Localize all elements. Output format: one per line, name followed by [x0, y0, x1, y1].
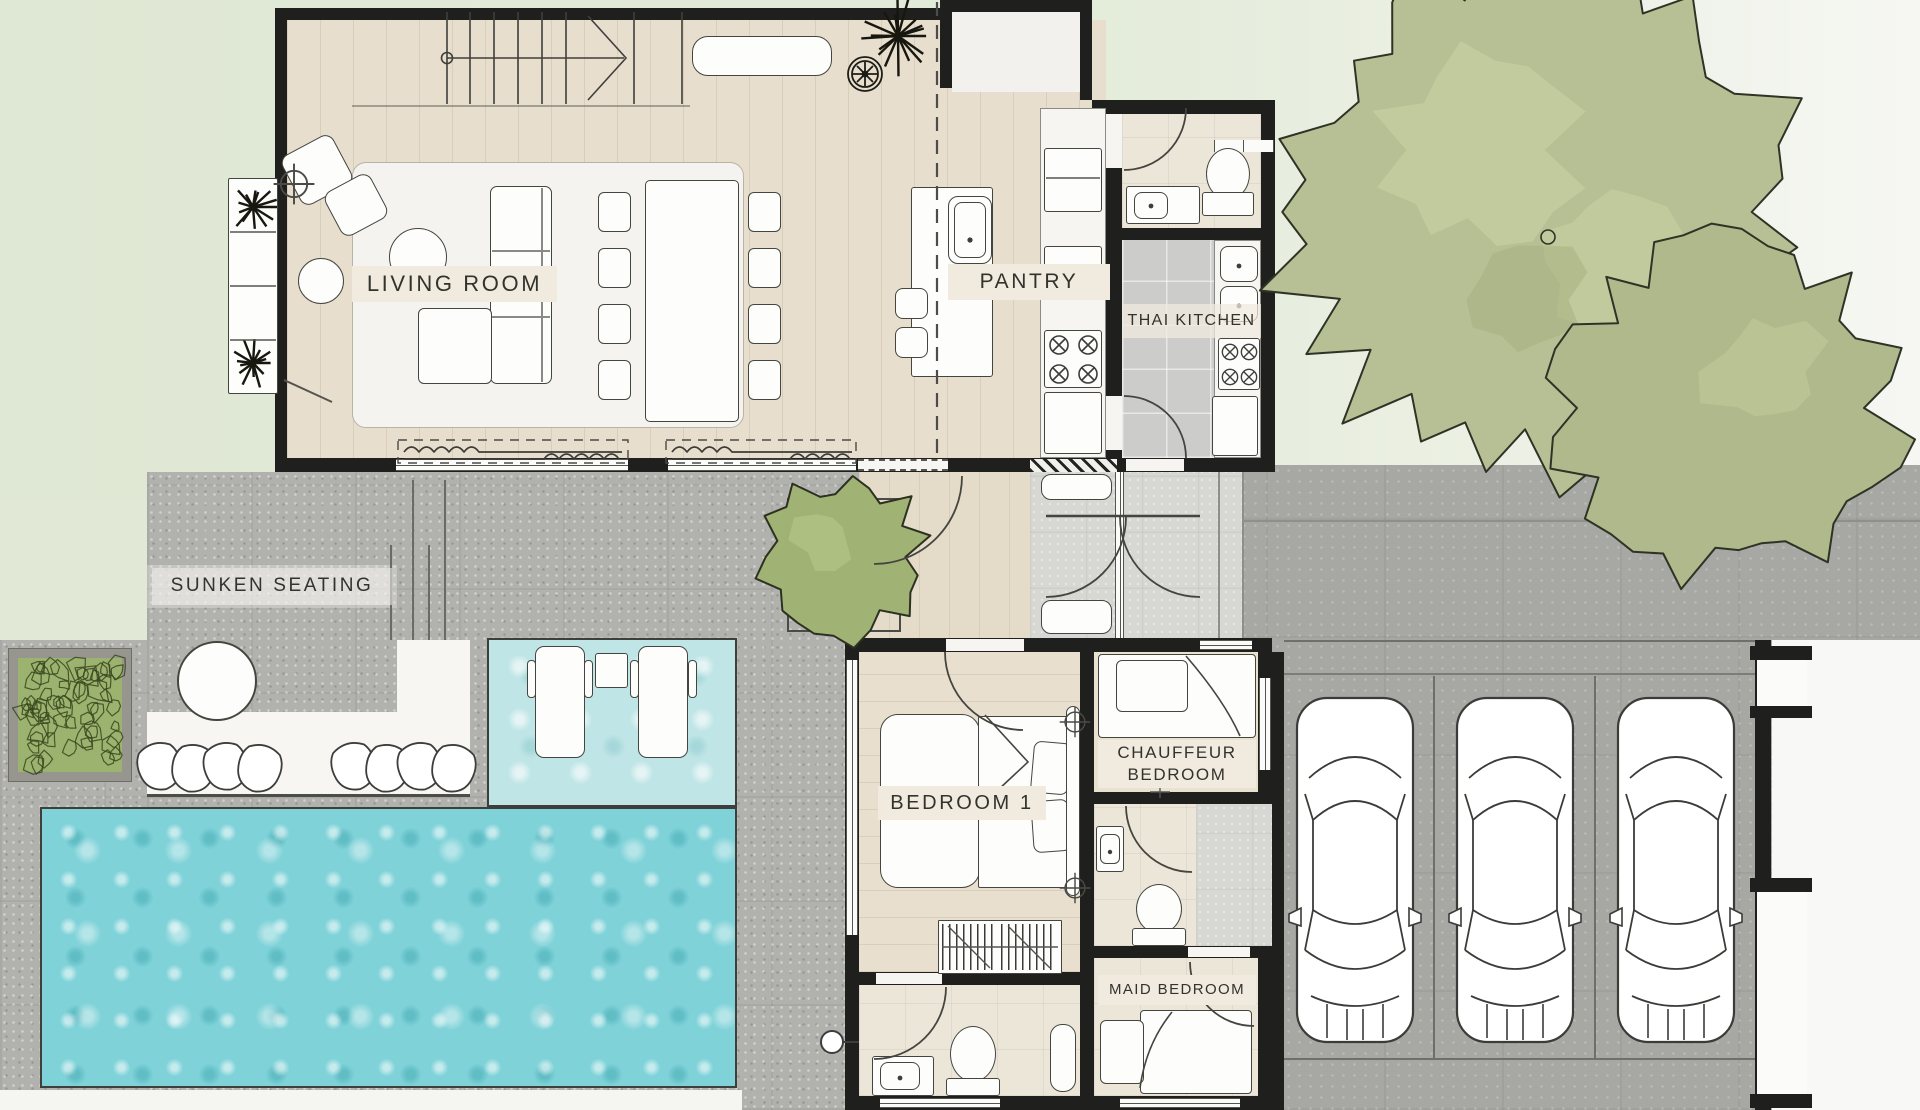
door-gap-bedroom1 [946, 639, 1024, 651]
label-sunken-seating: SUNKEN SEATING [152, 568, 392, 605]
dining-chair-5 [748, 192, 781, 232]
garage-bay-divider-2 [1594, 676, 1596, 1058]
wall-opening-dashed [858, 459, 948, 471]
garage-front-line [1284, 640, 1755, 642]
label-maid-bedroom: MAID BEDROOM [1098, 975, 1256, 1005]
sunken-pit-floor [147, 712, 397, 796]
sunken-round-table [177, 641, 257, 721]
sunken-pit-edge [147, 794, 470, 797]
fridge [1044, 148, 1102, 212]
cbath-sink [1100, 834, 1120, 864]
wall-wing-right [1261, 100, 1275, 472]
wall-chauffeur-bath [1094, 792, 1272, 804]
garage-side-opening-2 [1757, 892, 1807, 1094]
bath1-shower-tray [1050, 1024, 1076, 1092]
court-step-2 [1242, 472, 1244, 638]
bed1-headboard [1066, 706, 1080, 896]
wall-garage-left [1272, 652, 1284, 1110]
tree-planter-box [787, 498, 901, 632]
terrace-step-line-4 [428, 545, 430, 640]
terrace-step-line-1 [412, 480, 414, 640]
hedge-shrub [18, 658, 122, 772]
wall-cap-4 [1750, 1094, 1812, 1108]
sunken-pit-floor-right [397, 640, 470, 796]
bath1-toilet-bowl [950, 1026, 996, 1082]
dining-chair-1 [598, 192, 631, 232]
label-chauffeur-bedroom-text: CHAUFFEUR BEDROOM [1112, 742, 1242, 786]
window-bedroom1-left [846, 660, 858, 935]
sliding-window-1 [396, 459, 628, 471]
dining-chair-7 [748, 304, 781, 344]
swimming-pool [40, 807, 737, 1088]
garden-lawn-left [0, 500, 150, 660]
entry-mat [1030, 459, 1117, 472]
terrace-step-line-2 [444, 480, 446, 640]
door-gap-thai [1106, 396, 1122, 450]
sink-top-bath [1134, 192, 1168, 219]
door-gap-bath1 [876, 973, 942, 984]
bar-stool-1 [895, 288, 928, 319]
wall-porch-left [940, 0, 952, 88]
wall-porch-right [1080, 0, 1092, 100]
wall-porch-top [940, 0, 1092, 12]
cbath-toilet-tank [1132, 928, 1186, 946]
thai-prep-table [1212, 396, 1258, 456]
console-table [692, 36, 832, 76]
side-passage [1196, 804, 1272, 946]
window-seat [228, 178, 278, 394]
garage-side-opening-1 [1757, 660, 1807, 706]
bath1-sink [880, 1062, 920, 1090]
wardrobe-clothes-1 [942, 924, 997, 970]
thai-stove [1218, 338, 1260, 390]
pool-lounger-1 [535, 646, 585, 758]
label-living-room: LIVING ROOM [352, 266, 557, 302]
wall-wing-divider [1122, 228, 1261, 240]
maid-bed [1140, 1010, 1252, 1094]
window-bath1-bottom [880, 1098, 1000, 1108]
entry-planter-1 [1041, 474, 1112, 500]
bottom-margin [0, 1090, 742, 1110]
wall-b-mid [1080, 652, 1094, 1096]
label-living-room-text: LIVING ROOM [367, 270, 542, 299]
floor-plan: LIVING ROOM PANTRY THAI KITCHEN SUNKEN S… [0, 0, 1920, 1110]
toilet-top-tank [1202, 192, 1254, 216]
window-chauffeur-top [1200, 640, 1252, 650]
ottoman [418, 308, 492, 384]
stove [1044, 330, 1102, 388]
sliding-window-2 [668, 459, 856, 471]
wall-wing-top [1092, 100, 1275, 114]
wall-cap-3 [1750, 878, 1812, 892]
label-pantry-text: PANTRY [980, 268, 1079, 295]
dining-table [645, 180, 739, 422]
thai-sink-1 [1220, 246, 1258, 282]
window-maid-bottom [1120, 1098, 1240, 1108]
bath1-toilet-tank [946, 1078, 1000, 1096]
label-maid-bedroom-text: MAID BEDROOM [1109, 980, 1245, 1000]
pool-side-table [595, 653, 628, 688]
lounger-armrest-2 [584, 660, 593, 698]
chauffeur-pillow [1116, 660, 1188, 712]
porch-floor [952, 12, 1080, 92]
label-thai-kitchen: THAI KITCHEN [1122, 304, 1261, 338]
garage-inner-line [1284, 673, 1755, 675]
label-bedroom-1-text: BEDROOM 1 [890, 790, 1033, 816]
wall-a-top [275, 8, 952, 20]
dining-chair-4 [598, 360, 631, 400]
door-gap-thai-bottom [1126, 459, 1184, 471]
door-gap-wing-bath [1106, 110, 1122, 168]
garage-bay-divider-1 [1433, 676, 1435, 1058]
window-chauffeur-right [1259, 678, 1271, 770]
lounger-armrest-3 [630, 660, 639, 698]
label-chauffeur-bedroom: CHAUFFEUR BEDROOM [1098, 740, 1256, 788]
wardrobe-clothes-2 [1001, 924, 1056, 970]
dining-chair-6 [748, 248, 781, 288]
island-sink-inner [954, 202, 986, 258]
court-step-1 [1218, 472, 1220, 638]
cbath-toilet-bowl [1136, 884, 1182, 934]
door-gap-maid [1188, 947, 1250, 957]
driveway-edge-line [1244, 520, 1920, 522]
dining-chair-3 [598, 304, 631, 344]
wall-cap-2 [1750, 706, 1812, 718]
label-sunken-seating-text: SUNKEN SEATING [171, 574, 374, 599]
garage-rear-line [1284, 1058, 1755, 1060]
wall-cap-1 [1750, 646, 1812, 660]
side-table [298, 258, 344, 304]
pool-lounger-2 [638, 646, 688, 758]
bar-stool-2 [895, 327, 928, 358]
lounger-armrest-4 [688, 660, 697, 698]
wall-b-right-2 [1258, 946, 1272, 1110]
oven [1044, 392, 1102, 454]
label-pantry: PANTRY [948, 264, 1110, 300]
label-bedroom-1: BEDROOM 1 [878, 786, 1046, 820]
entry-sidelight [1115, 472, 1124, 638]
lounger-armrest-1 [527, 660, 536, 698]
dining-chair-2 [598, 248, 631, 288]
label-thai-kitchen-text: THAI KITCHEN [1128, 311, 1256, 332]
entry-planter-2 [1041, 600, 1112, 634]
dining-chair-8 [748, 360, 781, 400]
maid-pillow [1100, 1020, 1144, 1084]
